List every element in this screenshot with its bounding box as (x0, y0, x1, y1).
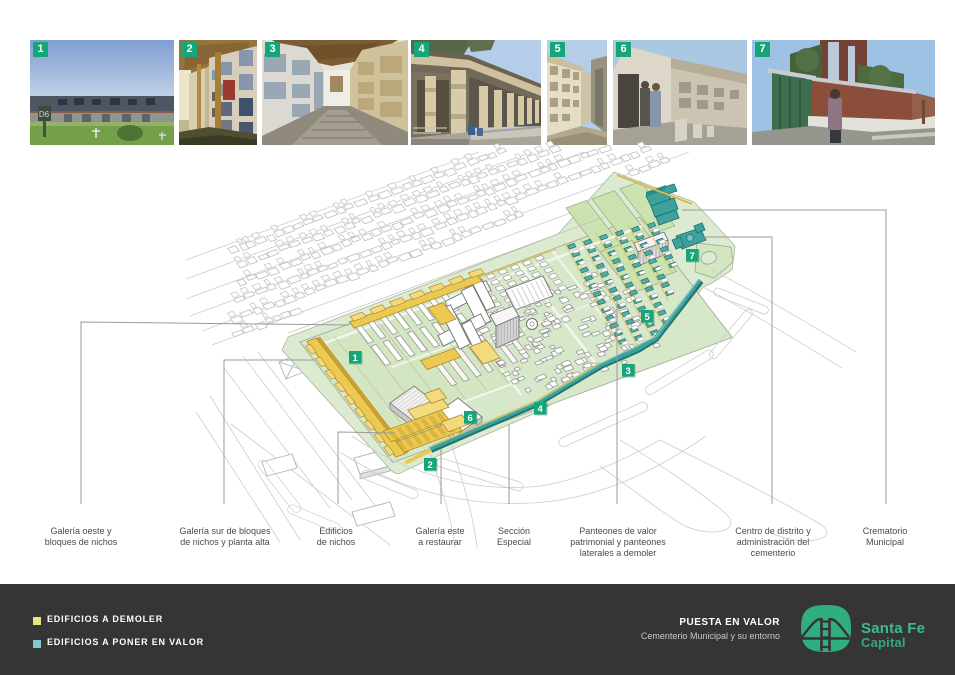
svg-text:7: 7 (690, 251, 695, 262)
svg-text:4: 4 (538, 404, 544, 415)
svg-text:3: 3 (626, 366, 631, 377)
svg-text:5: 5 (645, 312, 651, 323)
svg-text:2: 2 (428, 460, 433, 471)
svg-text:1: 1 (353, 353, 359, 364)
svg-text:6: 6 (468, 413, 473, 424)
